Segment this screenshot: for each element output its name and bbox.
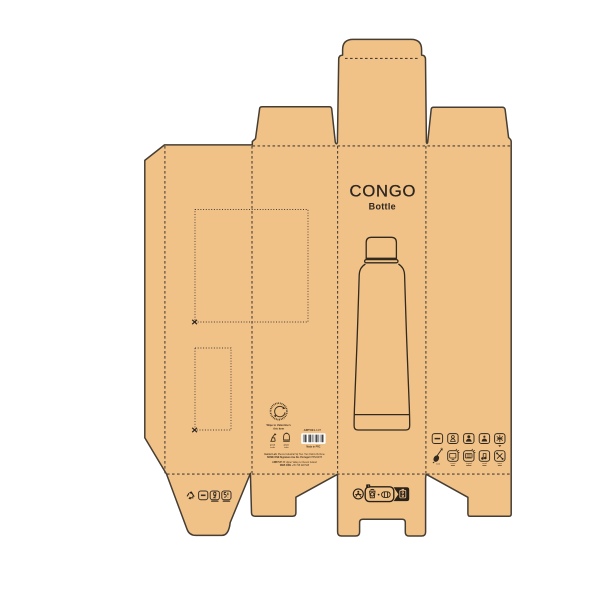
svg-text:ARBYUP 35 Upper Valley Ln Devo: ARBYUP 35 Upper Valley Ln Devon Ireland	[272, 461, 317, 464]
svg-text:ART011-107: ART011-107	[304, 428, 322, 432]
svg-text:WEB ORG +35 725 228 528: WEB ORG +35 725 228 528	[280, 465, 310, 467]
svg-text:repair: repair	[498, 462, 503, 465]
svg-text:stand: stand	[436, 463, 440, 466]
svg-text:SOME ONE Signature Ave No. Por: SOME ONE Signature Ave No. Portugal 0755…	[267, 456, 322, 459]
svg-text:this item: this item	[273, 427, 284, 431]
svg-text:Bottle: Bottle	[369, 201, 396, 211]
svg-text:Made in PRC: Made in PRC	[306, 446, 320, 448]
svg-text:keypad: keypad	[466, 463, 472, 465]
svg-text:Wipe to Valentine’s: Wipe to Valentine’s	[267, 423, 292, 427]
svg-text:sound: sound	[482, 463, 487, 465]
svg-text:holder: holder	[284, 446, 289, 449]
svg-text:Hunter Lab: Plexus Industrial: Hunter Lab: Plexus Industrial Sp Two. Tw…	[264, 453, 325, 456]
svg-text:CONGO: CONGO	[350, 182, 417, 201]
svg-text:handle: handle	[270, 447, 275, 449]
svg-text:screen: screen	[450, 462, 455, 465]
